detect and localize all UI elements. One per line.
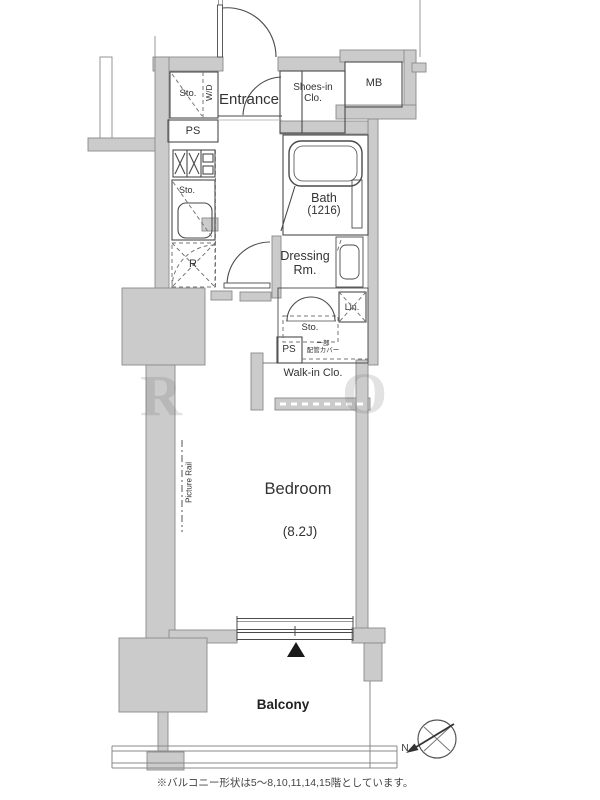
- exterior-lines: [155, 0, 420, 57]
- label-dressing-room: Dressing Rm.: [270, 249, 340, 277]
- label-walk-in-closet: Walk-in Clo.: [283, 367, 343, 379]
- label-bedroom-size: (8.2J): [240, 524, 360, 539]
- label-linen: Lin.: [336, 302, 368, 312]
- label-compass-north: N: [398, 743, 412, 754]
- floor-plan: Entrance Shoes-in Clo. MB Sto. W/D PS St…: [0, 0, 600, 800]
- label-balcony: Balcony: [233, 697, 333, 712]
- label-shoes-in-closet: Shoes-in Clo.: [286, 82, 340, 104]
- pipe-cover-line1: 一部: [317, 340, 330, 347]
- label-bedroom-name: Bedroom: [238, 480, 358, 498]
- bedroom-window: [237, 616, 353, 641]
- footnote-text: ※バルコニー形状は5〜8,10,11,14,15階としています。: [85, 778, 485, 790]
- label-storage-top: Sto.: [168, 89, 208, 100]
- label-pipe-cover: 一部配管カバー: [303, 340, 343, 355]
- label-kitchen-storage: Sto.: [167, 185, 207, 195]
- label-bath-size: (1216): [284, 205, 364, 218]
- label-pipe-space-top: PS: [173, 125, 213, 137]
- label-pipe-space-mid: PS: [272, 344, 306, 355]
- label-bath-name: Bath: [284, 191, 364, 205]
- label-refrigerator: R: [173, 258, 213, 270]
- label-meter-box: MB: [354, 77, 394, 89]
- floor-plan-drawing: [0, 0, 600, 800]
- entry-direction-marker: [287, 642, 305, 657]
- label-picture-rail: Picture Rail: [186, 442, 195, 522]
- pipe-cover-line2: 配管カバー: [307, 347, 340, 354]
- label-washer-dryer: W/D: [205, 79, 215, 107]
- compass-icon: [406, 720, 456, 758]
- walls: [88, 50, 426, 770]
- label-storage-mid: Sto.: [290, 323, 330, 334]
- label-entrance: Entrance: [204, 92, 294, 109]
